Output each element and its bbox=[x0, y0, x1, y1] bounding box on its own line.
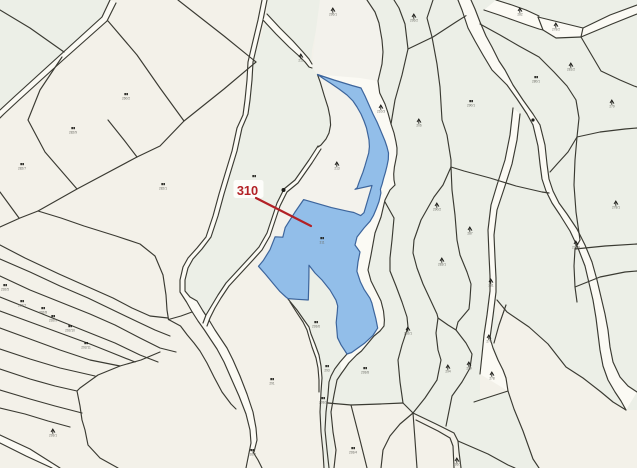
svg-text:278/3: 278/3 bbox=[572, 246, 580, 250]
svg-text:282/9: 282/9 bbox=[69, 131, 77, 135]
svg-text:299: 299 bbox=[466, 367, 472, 371]
svg-text:311: 311 bbox=[319, 241, 324, 245]
svg-text:292/9: 292/9 bbox=[49, 319, 57, 323]
svg-text:291: 291 bbox=[269, 382, 275, 386]
svg-text:282: 282 bbox=[517, 13, 523, 17]
svg-text:292/10: 292/10 bbox=[65, 329, 75, 333]
svg-text:278: 278 bbox=[489, 377, 495, 381]
svg-text:278: 278 bbox=[486, 340, 492, 344]
svg-text:282/1: 282/1 bbox=[159, 187, 167, 191]
svg-text:293/4: 293/4 bbox=[349, 451, 357, 455]
svg-text:295/1: 295/1 bbox=[453, 463, 461, 467]
svg-text:279: 279 bbox=[609, 105, 615, 109]
svg-text:292/2: 292/2 bbox=[248, 453, 256, 457]
svg-text:213: 213 bbox=[334, 167, 340, 171]
svg-text:293/8: 293/8 bbox=[361, 371, 369, 375]
svg-text:292/5: 292/5 bbox=[1, 288, 9, 292]
svg-text:293: 293 bbox=[324, 369, 330, 373]
svg-text:293/6: 293/6 bbox=[312, 325, 320, 329]
svg-text:281/2: 281/2 bbox=[567, 68, 575, 72]
svg-text:295/1: 295/1 bbox=[329, 13, 337, 17]
svg-text:294: 294 bbox=[445, 370, 451, 374]
svg-text:260/2: 260/2 bbox=[122, 97, 130, 101]
svg-text:282/7: 282/7 bbox=[18, 167, 26, 171]
svg-text:281: 281 bbox=[488, 284, 494, 288]
svg-text:292/1: 292/1 bbox=[404, 332, 412, 336]
svg-text:292/8: 292/8 bbox=[39, 311, 47, 315]
svg-text:293/1: 293/1 bbox=[49, 434, 57, 438]
svg-text:295/2: 295/2 bbox=[410, 19, 418, 23]
svg-text:290/1: 290/1 bbox=[467, 104, 475, 108]
svg-text:210/3: 210/3 bbox=[377, 110, 385, 114]
svg-text:287: 287 bbox=[467, 232, 473, 236]
svg-text:206: 206 bbox=[416, 124, 422, 128]
svg-text:310: 310 bbox=[237, 183, 258, 198]
svg-text:290/2: 290/2 bbox=[433, 208, 441, 212]
svg-text:278/1: 278/1 bbox=[612, 206, 620, 210]
svg-text:283/1: 283/1 bbox=[438, 263, 446, 267]
svg-text:292/7: 292/7 bbox=[18, 304, 26, 308]
svg-text:219: 219 bbox=[298, 59, 304, 63]
svg-text:278/2: 278/2 bbox=[552, 28, 560, 32]
svg-text:293/2: 293/2 bbox=[319, 401, 327, 405]
svg-text:280/1: 280/1 bbox=[532, 80, 540, 84]
svg-text:292/11: 292/11 bbox=[81, 346, 91, 350]
